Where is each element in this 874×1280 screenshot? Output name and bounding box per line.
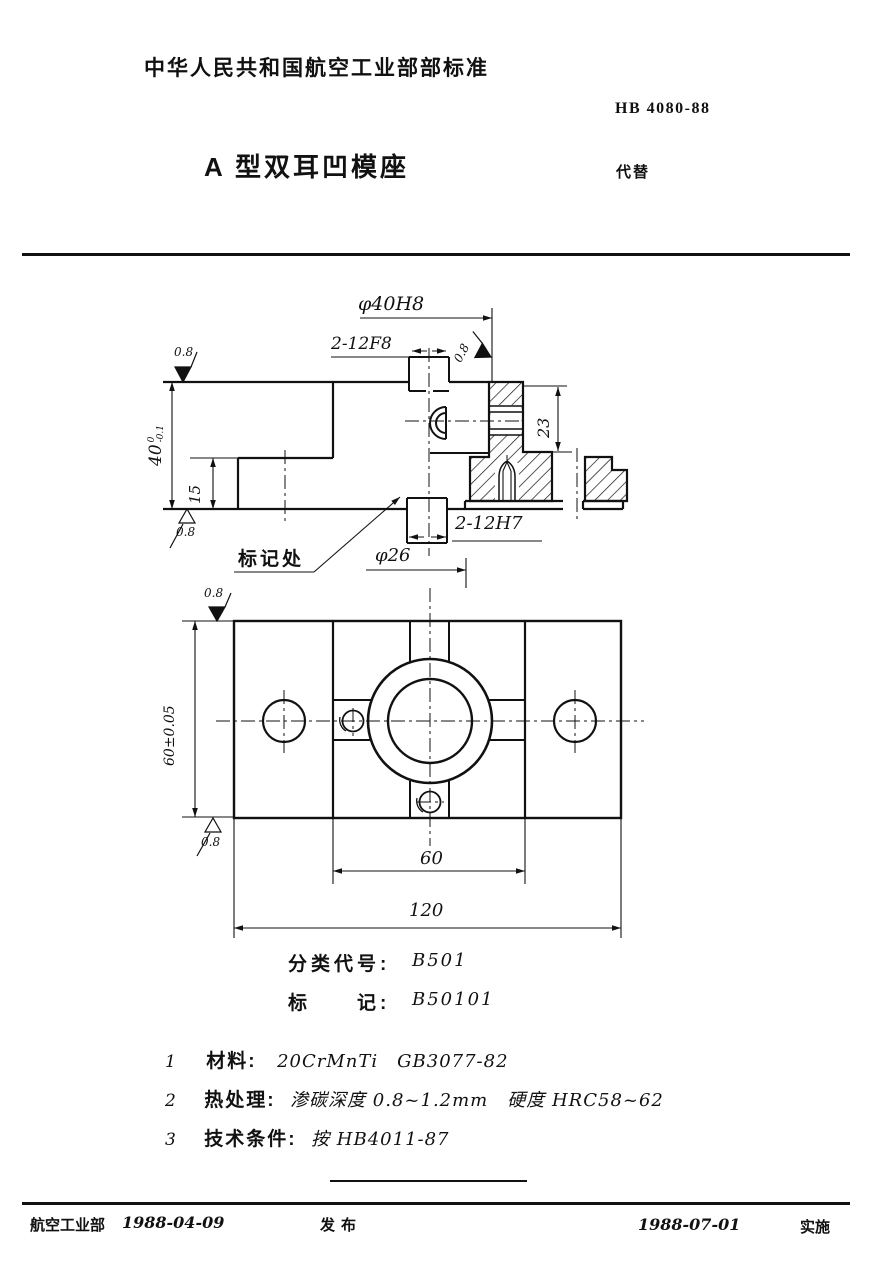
- dim-spacing-60-label: 60: [420, 848, 443, 869]
- dim-counterbore-label: φ26: [375, 545, 411, 566]
- footer-divider: [22, 1202, 850, 1205]
- mark-code-value: B50101: [412, 989, 495, 1010]
- footer-impl-label: 实施: [800, 1216, 830, 1237]
- notes-divider: [330, 1180, 527, 1182]
- side-slot-channel: [333, 700, 525, 740]
- note-row: 3 技术条件: 按 HB4011-87: [165, 1124, 450, 1151]
- dim-height-40-label: 400-0.1: [146, 425, 166, 466]
- finish-triangle-icon: [175, 367, 191, 382]
- note-row: 1 材料: 20CrMnTi GB3077-82: [165, 1046, 509, 1073]
- mark-location-note: 标记处: [238, 544, 304, 571]
- footer-impl-date: 1988-07-01: [638, 1215, 740, 1234]
- dim-height-15-label: 15: [186, 485, 204, 504]
- tolerance-stack: 0-0.1: [148, 425, 166, 442]
- plan-dimension-lines: [182, 621, 621, 938]
- dim-bore-label: φ40H8: [358, 293, 424, 315]
- footer-issue-date: 1988-04-09: [122, 1213, 224, 1232]
- mark-code-label: 标 记:: [288, 988, 390, 1015]
- finish-triangle-icon: [179, 509, 195, 523]
- note-text: 渗碳深度 0.8~1.2mm 硬度 HRC58~62: [290, 1090, 664, 1111]
- footer-issue-label: 发布: [320, 1214, 362, 1235]
- footer-issuer: 航空工业部: [30, 1214, 105, 1235]
- note-number: 1: [165, 1052, 176, 1072]
- dim-bottom-slot-label: 2-12H7: [455, 513, 523, 534]
- bore-arc: [430, 407, 446, 439]
- note-row: 2 热处理: 渗碳深度 0.8~1.2mm 硬度 HRC58~62: [165, 1085, 664, 1112]
- step-outline: [238, 382, 333, 509]
- finish-value-label: 0.8: [204, 586, 223, 600]
- note-text: 按 HB4011-87: [311, 1129, 449, 1150]
- dim-depth-23-label: 23: [534, 418, 553, 438]
- finish-value-label: 0.8: [201, 835, 220, 849]
- note-label: 材料:: [206, 1051, 256, 1072]
- finish-value-label: 0.8: [174, 345, 193, 359]
- section-hatched-block-right: [585, 457, 627, 501]
- finish-triangle-icon: [209, 607, 225, 621]
- dim-length-120-label: 120: [409, 900, 443, 921]
- dim-width-tolerance-label: 60±0.05: [162, 705, 178, 766]
- dim-height-40-value: 40: [146, 444, 166, 466]
- note-label: 热处理:: [204, 1090, 275, 1111]
- standard-document-page: 中华人民共和国航空工业部部标准 HB 4080-88 A 型双耳凹模座 代替: [0, 0, 874, 1280]
- note-number: 2: [165, 1091, 176, 1111]
- class-code-label: 分类代号:: [288, 949, 390, 976]
- plan-view: [182, 588, 644, 938]
- plan-outline: [234, 621, 621, 818]
- finish-value-label: 0.8: [176, 525, 195, 539]
- note-number: 3: [165, 1130, 176, 1150]
- note-label: 技术条件:: [204, 1129, 296, 1150]
- plan-centerlines: [216, 588, 644, 846]
- note-text: 20CrMnTi GB3077-82: [277, 1051, 508, 1072]
- finish-triangle-icon: [205, 818, 221, 832]
- plan-arrowheads: [192, 621, 621, 931]
- class-code-value: B501: [412, 950, 468, 971]
- dim-top-slot-label: 2-12F8: [331, 334, 392, 354]
